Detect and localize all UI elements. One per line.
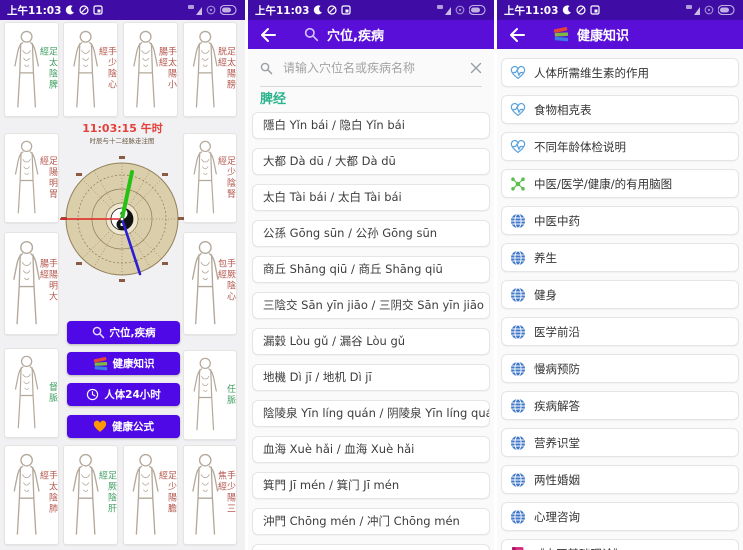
- knowledge-label: 养生: [534, 250, 557, 266]
- meridian-card-heart[interactable]: 手少陰心經: [63, 22, 118, 117]
- meridian-label: 足陽明胃經: [38, 156, 56, 200]
- globe-icon: [510, 250, 526, 266]
- moon-icon: [562, 5, 572, 15]
- acupoint-item[interactable]: 陰陵泉 Yīn líng quán / 阴陵泉 Yīn líng quán: [252, 400, 490, 427]
- section-label: 脾经: [260, 88, 286, 107]
- signal-hd-icon: [437, 5, 451, 15]
- meridian-label: 足厥陰肝經: [97, 471, 115, 520]
- meridian-card-bladder[interactable]: 足太陽膀胱經: [183, 22, 237, 117]
- mute-icon: [327, 5, 337, 15]
- meridian-card-gallbladder[interactable]: 足少陽膽經: [123, 445, 178, 545]
- meridian-label: 手陽明大腸經: [38, 258, 56, 309]
- clear-icon[interactable]: [470, 62, 482, 74]
- acupoint-item[interactable]: 箕門 Jī mén / 箕门 Jī mén: [252, 472, 490, 499]
- meridian-card-lung[interactable]: 手太陰肺經: [4, 445, 59, 545]
- meridian-card-small-intestine[interactable]: 手太陽小腸經: [123, 22, 178, 117]
- knowledge-item[interactable]: 人体所需维生素的作用: [501, 58, 739, 87]
- acupoint-item[interactable]: 沖門 Chōng mén / 冲门 Chōng mén: [252, 508, 490, 535]
- globe-icon: [510, 509, 526, 525]
- meridian-card-triple-burner[interactable]: 手少陽三焦經: [183, 445, 237, 545]
- status-bar: 上午11:03: [0, 0, 245, 20]
- globe-icon: [510, 287, 526, 303]
- knowledge-item[interactable]: 中医中药: [501, 206, 739, 235]
- knowledge-label: 慢病预防: [534, 361, 580, 377]
- knowledge-label: 营养识堂: [534, 435, 580, 451]
- knowledge-label: 中医/医学/健康/的有用脑图: [534, 176, 672, 192]
- network-icon: [206, 5, 216, 15]
- acupoint-item[interactable]: 公孫 Gōng sūn / 公孙 Gōng sūn: [252, 220, 490, 247]
- meridian-grid: 足太陰脾經 手少陰心經 手太陽小腸經 足太陽膀胱經 足陽明胃經 足少陰腎經 手陽…: [0, 20, 245, 550]
- app-bar: 穴位,疾病: [248, 20, 494, 49]
- meridian-card-stomach[interactable]: 足陽明胃經: [4, 133, 59, 223]
- knowledge-label: 食物相克表: [534, 102, 592, 118]
- mute-icon: [79, 5, 89, 15]
- mindmap-icon: [510, 176, 526, 192]
- screen-health-knowledge: 上午11:03 健康知识 人体所需维生素的作用 食物相克表 不同年龄体检说明: [497, 0, 743, 550]
- body-figure: [186, 356, 224, 433]
- page-title: 健康知识: [577, 25, 629, 44]
- status-time: 上午11:03: [504, 3, 558, 18]
- meridian-label: 手太陰肺經: [38, 471, 56, 520]
- knowledge-label: 中医中药: [534, 213, 580, 229]
- knowledge-label: 疾病解答: [534, 398, 580, 414]
- back-icon[interactable]: [258, 25, 278, 45]
- meridian-card-liver[interactable]: 足厥陰肝經: [63, 445, 118, 545]
- health-knowledge-button[interactable]: 健康知识: [67, 352, 180, 375]
- battery-icon: [718, 5, 736, 15]
- network-icon: [455, 5, 465, 15]
- knowledge-item[interactable]: 《中医基础理论》: [501, 539, 739, 550]
- globe-icon: [510, 361, 526, 377]
- dial-title: 时辰与十二经脉走注图: [90, 136, 155, 145]
- floating-window-icon: [341, 5, 351, 15]
- knowledge-list: 人体所需维生素的作用 食物相克表 不同年龄体检说明 中医/医学/健康/的有用脑图…: [501, 58, 739, 550]
- status-time: 上午11:03: [255, 3, 309, 18]
- knowledge-label: 《中医基础理论》: [533, 546, 625, 550]
- acupoint-item[interactable]: 府舍 Fù shě / 府舍 Fù shě: [252, 544, 490, 550]
- meridian-label: 任脈: [225, 384, 234, 406]
- search-input[interactable]: [281, 60, 462, 76]
- search-icon: [260, 62, 273, 75]
- clock-icon: [86, 388, 99, 401]
- knowledge-item[interactable]: 营养识堂: [501, 428, 739, 457]
- floating-window-icon: [93, 5, 103, 15]
- button-label: 健康知识: [113, 356, 155, 371]
- acupoint-item[interactable]: 地機 Dì jī / 地机 Dì jī: [252, 364, 490, 391]
- knowledge-label: 健身: [534, 287, 557, 303]
- acupoint-item[interactable]: 太白 Tài bái / 太白 Tài bái: [252, 184, 490, 211]
- network-icon: [704, 5, 714, 15]
- screen-acupoints: 上午11:03 穴位,疾病 脾经 隱白 Yǐn bái / 隐白 Yǐn bái…: [248, 0, 494, 550]
- book-icon: [510, 546, 525, 550]
- acupoint-item[interactable]: 三陰交 Sān yīn jiāo / 三阴交 Sān yīn jiāo: [252, 292, 490, 319]
- body-figure: [7, 354, 46, 431]
- knowledge-item[interactable]: 慢病预防: [501, 354, 739, 383]
- knowledge-label: 两性婚姻: [534, 472, 580, 488]
- mute-icon: [576, 5, 586, 15]
- globe-icon: [510, 398, 526, 414]
- acupoint-item[interactable]: 大都 Dà dū / 大都 Dà dū: [252, 148, 490, 175]
- app-bar: 健康知识: [497, 20, 743, 49]
- acupoint-item[interactable]: 商丘 Shāng qiū / 商丘 Shāng qiū: [252, 256, 490, 283]
- meridian-card-kidney[interactable]: 足少陰腎經: [183, 133, 237, 223]
- acupoint-item[interactable]: 隱白 Yǐn bái / 隐白 Yǐn bái: [252, 112, 490, 139]
- acupoints-diseases-button[interactable]: 穴位,疾病: [67, 321, 180, 344]
- books-icon: [553, 27, 569, 42]
- knowledge-item[interactable]: 医学前沿: [501, 317, 739, 346]
- meridian-card-pericardium[interactable]: 手厥陰心包經: [183, 232, 237, 335]
- meridian-label: 足太陽膀胱經: [216, 46, 234, 93]
- meridian-card-ren-vessel[interactable]: 任脈: [183, 350, 237, 440]
- battery-icon: [220, 5, 238, 15]
- knowledge-label: 不同年龄体检说明: [534, 139, 626, 155]
- magnifier-icon: [304, 27, 319, 42]
- acupoint-list: 隱白 Yǐn bái / 隐白 Yǐn bái 大都 Dà dū / 大都 Dà…: [252, 112, 490, 550]
- signal-hd-icon: [188, 5, 202, 15]
- body-24-hours-button[interactable]: 人体24小时: [67, 383, 180, 406]
- knowledge-label: 心理咨询: [534, 509, 580, 525]
- globe-icon: [510, 213, 526, 229]
- meridian-label: 足太陰脾經: [38, 46, 56, 93]
- health-formula-button[interactable]: 健康公式: [67, 415, 180, 438]
- signal-hd-icon: [686, 5, 700, 15]
- knowledge-item[interactable]: 心理咨询: [501, 502, 739, 531]
- button-label: 人体24小时: [104, 387, 161, 402]
- knowledge-item[interactable]: 中医/医学/健康/的有用脑图: [501, 169, 739, 198]
- meridian-label: 手厥陰心包經: [216, 258, 234, 309]
- battery-icon: [469, 5, 487, 15]
- knowledge-label: 人体所需维生素的作用: [534, 65, 649, 81]
- knowledge-item[interactable]: 不同年龄体检说明: [501, 132, 739, 161]
- meridian-label: 手少陽三焦經: [216, 471, 234, 520]
- globe-icon: [510, 472, 526, 488]
- search-bar: [260, 56, 482, 87]
- acupoint-item[interactable]: 漏穀 Lòu gǔ / 漏谷 Lòu gǔ: [252, 328, 490, 355]
- books-icon: [93, 357, 108, 371]
- back-icon[interactable]: [507, 25, 527, 45]
- floating-window-icon: [590, 5, 600, 15]
- moon-icon: [65, 5, 75, 15]
- knowledge-item[interactable]: 食物相克表: [501, 95, 739, 124]
- meridian-label: 手少陰心經: [97, 46, 115, 93]
- status-bar: 上午11:03: [497, 0, 743, 20]
- meridian-label: 督脈: [47, 382, 56, 404]
- button-label: 穴位,疾病: [110, 325, 156, 340]
- knowledge-item[interactable]: 健身: [501, 280, 739, 309]
- knowledge-item[interactable]: 疾病解答: [501, 391, 739, 420]
- status-bar: 上午11:03: [248, 0, 494, 20]
- heart-pulse-icon: [510, 102, 526, 117]
- acupoint-item[interactable]: 血海 Xuè hǎi / 血海 Xuè hǎi: [252, 436, 490, 463]
- meridian-label: 足少陽膽經: [157, 471, 175, 520]
- knowledge-item[interactable]: 两性婚姻: [501, 465, 739, 494]
- status-time: 上午11:03: [7, 3, 61, 18]
- knowledge-label: 医学前沿: [534, 324, 580, 340]
- meridian-card-du-vessel[interactable]: 督脈: [4, 348, 59, 438]
- meridian-label: 手太陽小腸經: [157, 46, 175, 93]
- page-title: 穴位,疾病: [327, 25, 384, 44]
- moon-icon: [313, 5, 323, 15]
- globe-icon: [510, 435, 526, 451]
- button-label: 健康公式: [112, 419, 154, 434]
- globe-icon: [510, 324, 526, 340]
- heart-pulse-icon: [510, 65, 526, 80]
- screen-meridian-home: 上午11:03 足太陰脾經 手少陰心經 手太陽小腸經 足太陽膀胱經 足陽明胃經 …: [0, 0, 245, 550]
- meridian-label: 足少陰腎經: [216, 156, 234, 200]
- meridian-card-large-intestine[interactable]: 手陽明大腸經: [4, 232, 59, 335]
- meridian-card-spleen[interactable]: 足太陰脾經: [4, 22, 59, 117]
- knowledge-item[interactable]: 养生: [501, 243, 739, 272]
- meridian-clock-dial: 时辰与十二经脉走注图: [60, 134, 185, 286]
- magnifier-icon: [92, 326, 105, 339]
- heart-icon: [93, 420, 107, 433]
- heart-pulse-icon: [510, 139, 526, 154]
